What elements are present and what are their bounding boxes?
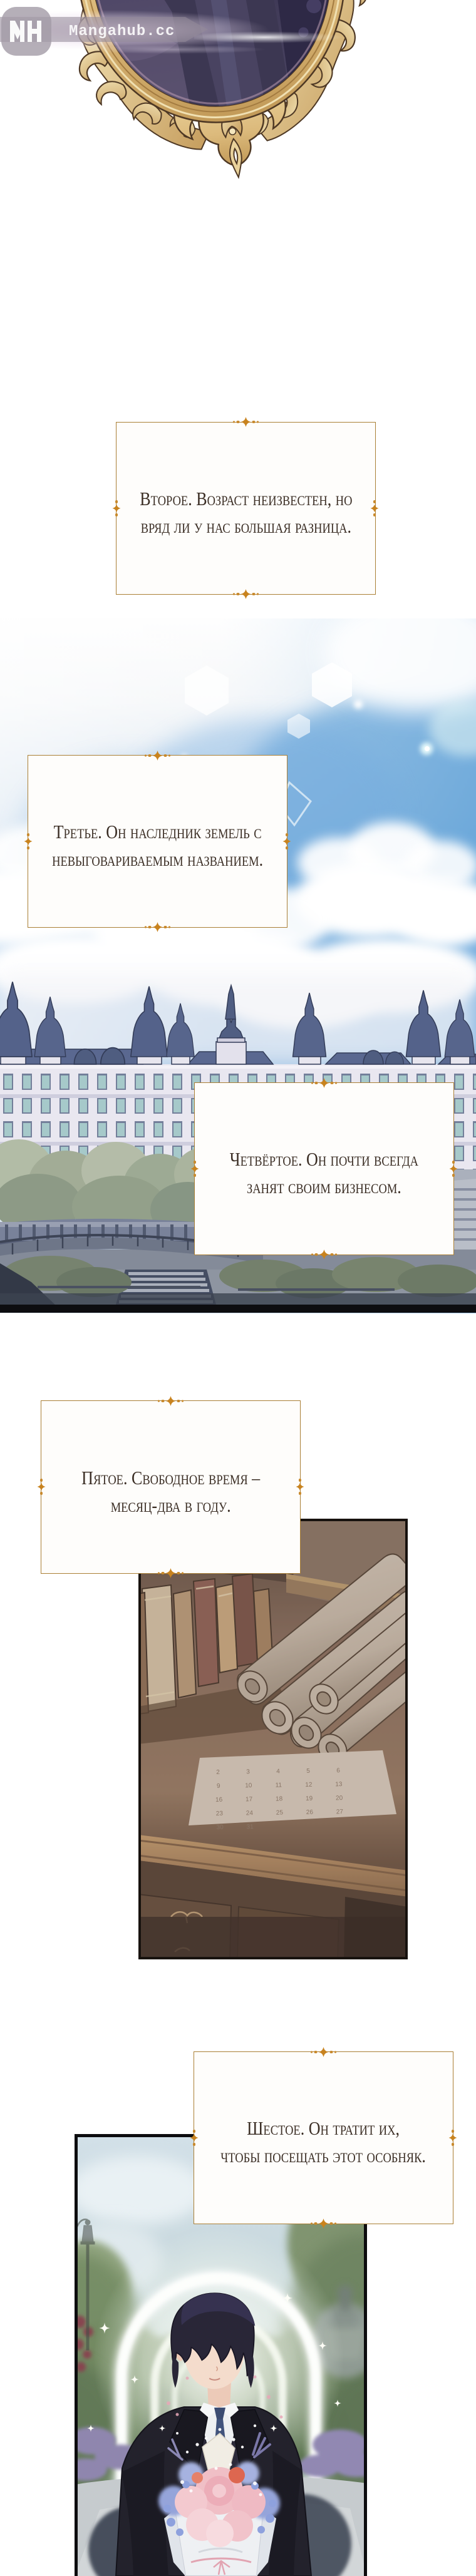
svg-text:Mangahub.cc: Mangahub.cc xyxy=(69,23,175,40)
